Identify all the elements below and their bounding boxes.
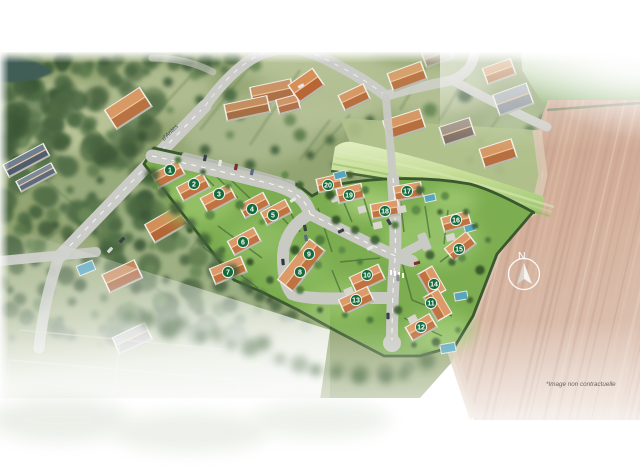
svg-text:11: 11 (427, 300, 435, 307)
svg-text:8: 8 (298, 269, 302, 276)
svg-text:1: 1 (168, 167, 172, 174)
svg-text:9: 9 (307, 251, 311, 258)
svg-text:*Image non contractuelle: *Image non contractuelle (546, 381, 616, 388)
svg-text:3: 3 (217, 191, 221, 198)
svg-text:5: 5 (271, 212, 275, 219)
svg-text:13: 13 (352, 297, 360, 304)
svg-text:20: 20 (324, 182, 332, 189)
svg-text:2: 2 (192, 181, 196, 188)
svg-text:N: N (518, 250, 526, 262)
svg-text:7: 7 (226, 269, 230, 276)
svg-text:14: 14 (430, 281, 438, 288)
svg-text:4: 4 (250, 206, 254, 213)
svg-text:6: 6 (241, 239, 245, 246)
